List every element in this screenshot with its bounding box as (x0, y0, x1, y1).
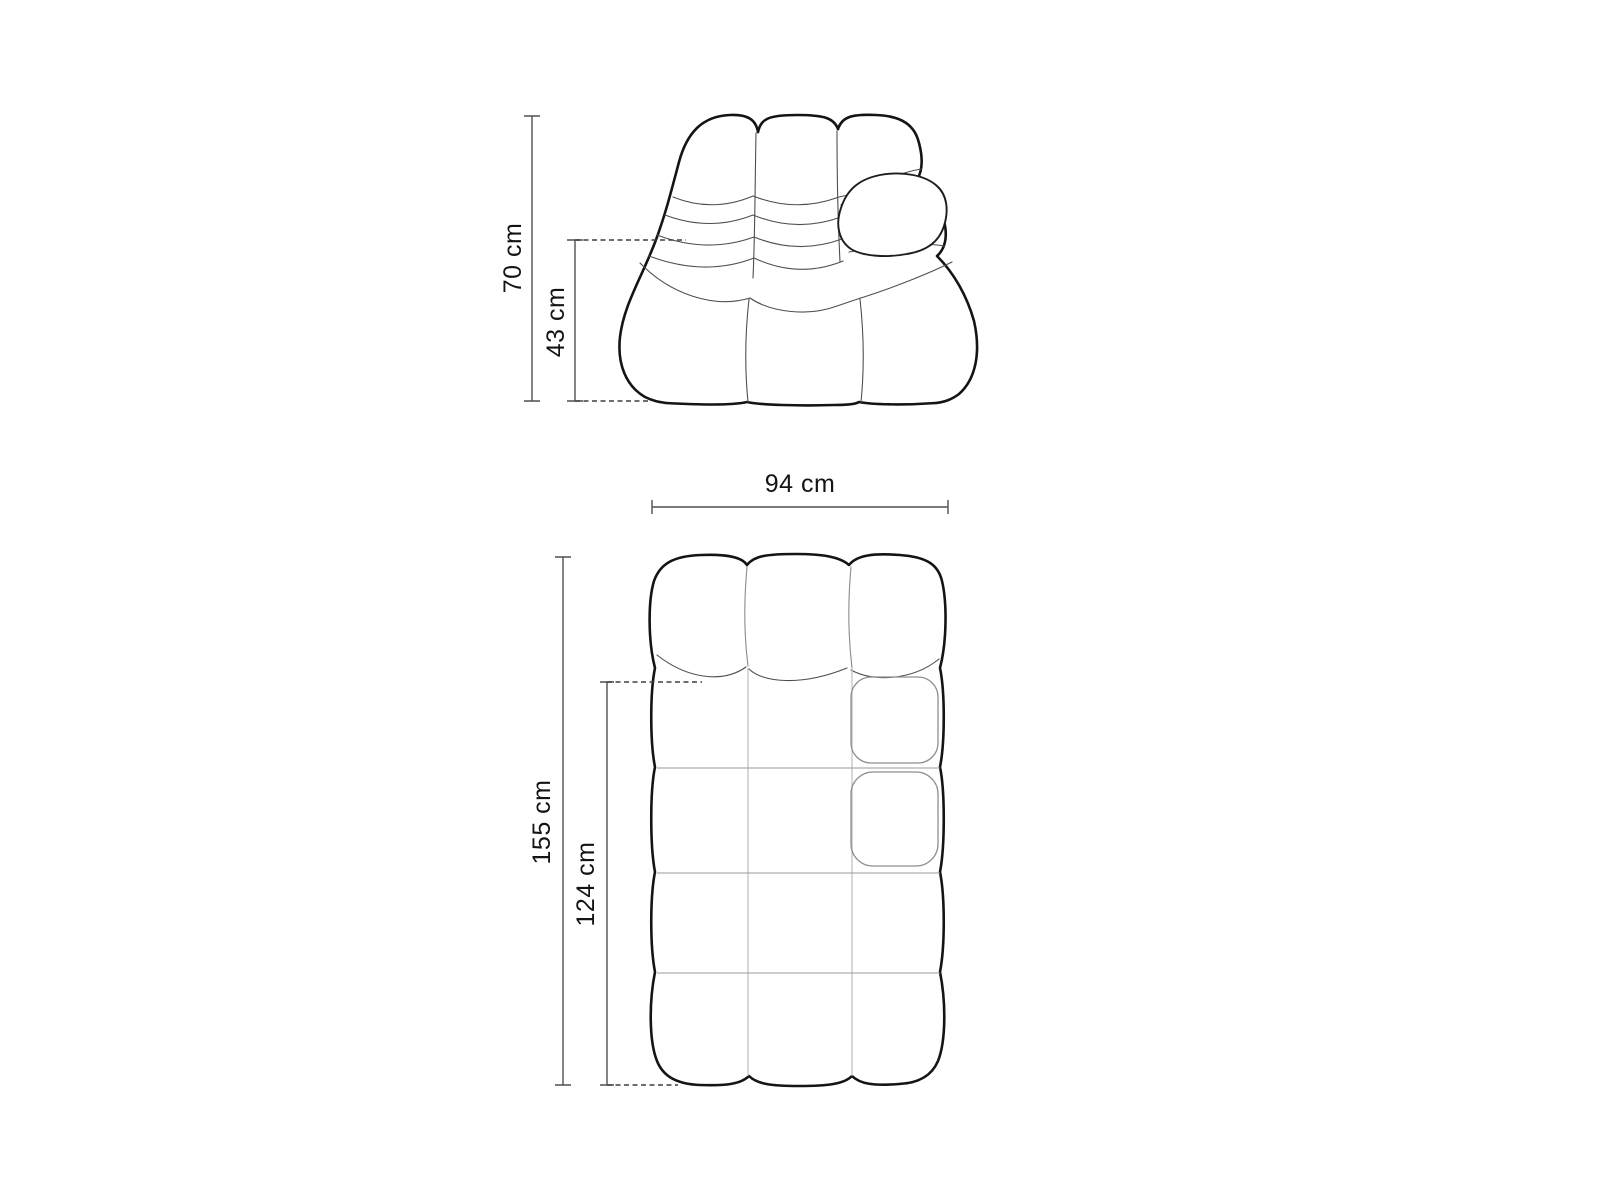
front-seat-seam-left (746, 299, 749, 402)
plan-width-dim-line (652, 500, 948, 514)
plan-seat-depth-dim-label: 124 cm (572, 842, 600, 927)
plan-backrest-bottom-left (657, 655, 746, 677)
plan-seat-depth-dim-line (600, 682, 614, 1085)
front-backrest-middle-top (758, 115, 838, 132)
plan-backrest-bottom-right (851, 659, 939, 678)
front-bottom-edge (666, 402, 936, 405)
plan-depth-dimension: 155 cm (528, 557, 571, 1085)
plan-backrest-side-seam-left (745, 567, 748, 666)
plan-depth-dim-label: 155 cm (528, 780, 556, 865)
front-seat-seam-right (860, 299, 863, 402)
sofa-dimension-diagram: 70 cm 43 cm (0, 0, 1600, 1200)
front-tuft-seam-4 (649, 256, 843, 269)
front-backrest-seam-left (753, 133, 756, 278)
top-plan-view: 94 cm 155 cm 124 cm (528, 470, 948, 1086)
front-seat-height-dimension: 43 cm (542, 240, 686, 401)
plan-backrest-side-seam-right (849, 567, 852, 668)
diagram-svg: 70 cm 43 cm (0, 0, 1600, 1200)
plan-depth-dim-line (555, 557, 571, 1085)
front-seat-height-dim-label: 43 cm (542, 287, 570, 358)
front-height-dim-label: 70 cm (499, 223, 527, 294)
plan-outer-contour (650, 554, 946, 1086)
front-right-contour (838, 115, 977, 403)
front-elevation-view: 70 cm 43 cm (499, 115, 977, 406)
front-left-contour (619, 115, 758, 403)
plan-armrest-inset-lower (851, 772, 938, 866)
front-height-dimension: 70 cm (499, 116, 540, 401)
plan-width-dim-label: 94 cm (765, 470, 836, 498)
plan-width-dimension: 94 cm (652, 470, 948, 514)
plan-seat-depth-dimension: 124 cm (572, 682, 702, 1085)
plan-backrest-bottom-middle (749, 668, 847, 681)
front-armrest-cushion (838, 173, 946, 256)
plan-armrest-inset-upper (851, 677, 938, 763)
